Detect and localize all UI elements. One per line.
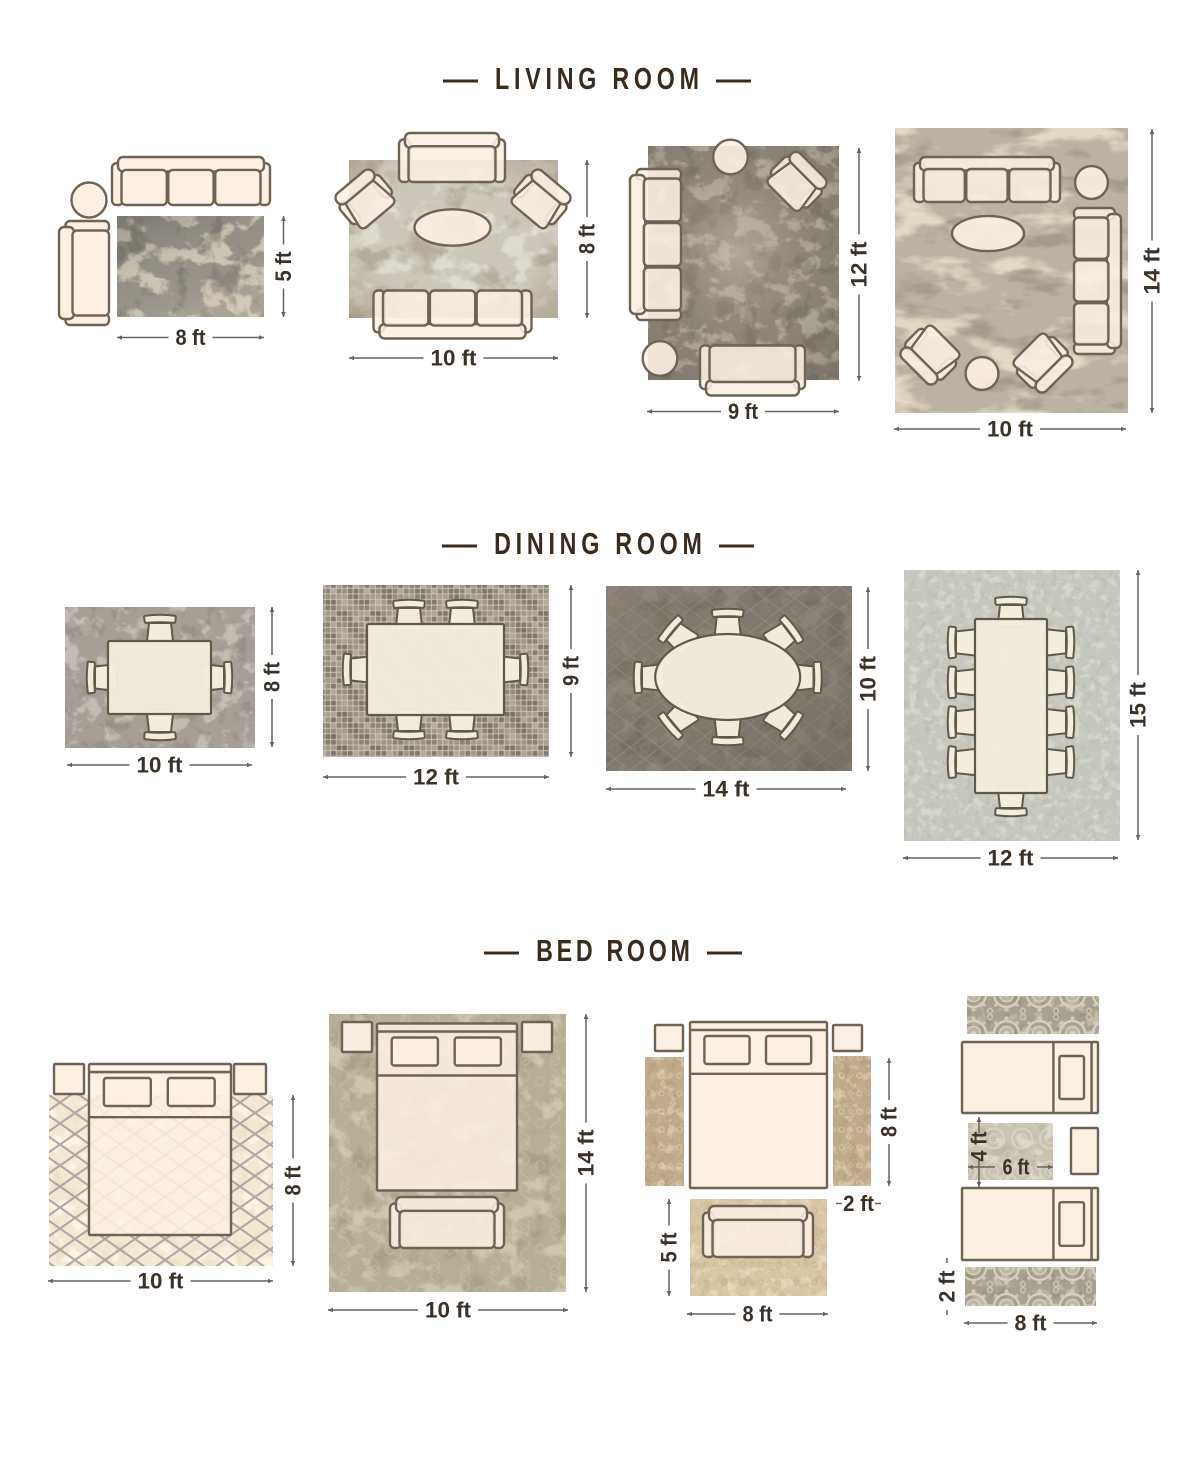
svg-text:8 ft: 8 ft [1015,1311,1048,1336]
svg-text:14 ft: 14 ft [574,1129,599,1177]
svg-text:14 ft: 14 ft [1140,247,1165,295]
svg-text:10 ft: 10 ft [425,1298,472,1323]
svg-text:10 ft: 10 ft [431,346,478,371]
svg-text:12 ft: 12 ft [847,241,872,288]
svg-text:5 ft: 5 ft [657,1232,682,1263]
svg-text:5 ft: 5 ft [271,251,296,282]
svg-text:2 ft: 2 ft [843,1191,875,1216]
svg-text:12 ft: 12 ft [988,846,1035,871]
svg-text:14 ft: 14 ft [703,777,751,802]
svg-text:10 ft: 10 ft [856,655,881,702]
svg-text:8 ft: 8 ft [743,1302,774,1327]
svg-text:10 ft: 10 ft [138,1269,185,1294]
svg-text:10 ft: 10 ft [987,417,1034,442]
svg-text:8 ft: 8 ft [877,1106,902,1137]
svg-text:8 ft: 8 ft [575,223,600,254]
svg-text:12 ft: 12 ft [413,765,460,790]
svg-text:9 ft: 9 ft [559,655,584,686]
svg-text:4 ft: 4 ft [967,1131,992,1162]
svg-text:6 ft: 6 ft [1003,1155,1031,1180]
svg-text:8 ft: 8 ft [176,325,207,350]
svg-text:10 ft: 10 ft [137,753,184,778]
svg-text:8 ft: 8 ft [260,661,285,692]
svg-text:15 ft: 15 ft [1126,681,1151,728]
svg-text:8 ft: 8 ft [281,1165,306,1196]
svg-text:2 ft: 2 ft [935,1270,960,1303]
svg-text:9 ft: 9 ft [728,399,759,424]
